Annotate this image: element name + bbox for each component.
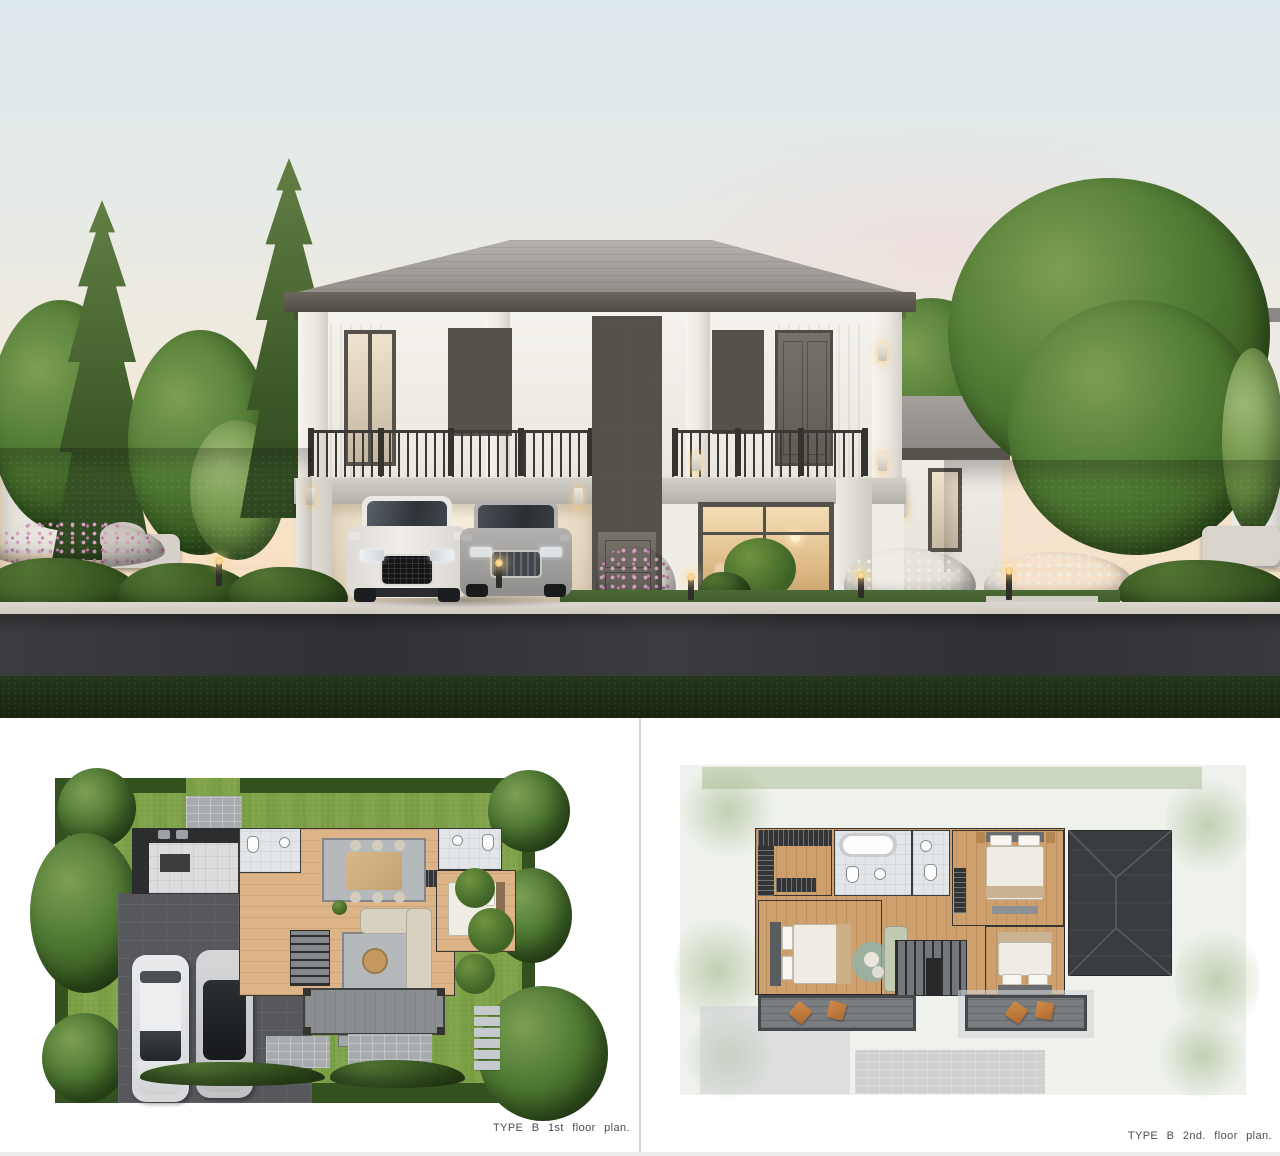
- window-glass: [452, 332, 508, 432]
- upper-window: [448, 328, 512, 436]
- car-windshield-top: [140, 1031, 181, 1061]
- plan-tree: [42, 1013, 127, 1103]
- staircase: [895, 940, 967, 996]
- nightstand: [976, 832, 985, 843]
- bed-throw: [998, 932, 1052, 942]
- wardrobe: [758, 846, 774, 896]
- stepping-stone: [474, 1006, 500, 1015]
- front-intake: [368, 588, 446, 597]
- pillow: [990, 835, 1012, 846]
- bed-bench: [992, 906, 1038, 914]
- bollard-glow: [495, 559, 503, 567]
- foreground-grass: [0, 676, 1280, 718]
- dining-chair: [372, 892, 383, 903]
- pillow: [1018, 835, 1040, 846]
- bollard-glow: [687, 573, 695, 581]
- bollard-light: [496, 562, 502, 588]
- railing-post: [378, 428, 384, 476]
- railing-post: [448, 428, 454, 476]
- floor-plan-1-caption: TYPE B 1st floor plan.: [493, 1122, 630, 1134]
- headlight: [470, 547, 492, 557]
- dining-chair: [350, 840, 361, 851]
- faded-pavers: [855, 1050, 1045, 1094]
- wheel: [466, 584, 488, 597]
- toilet: [924, 864, 937, 881]
- upper-window: [712, 330, 764, 434]
- plant: [332, 900, 347, 915]
- nightstand: [1046, 832, 1055, 843]
- side-mirror: [461, 534, 472, 541]
- balcony-left: [308, 426, 594, 480]
- windshield: [478, 505, 554, 530]
- audi-grille: [380, 554, 434, 586]
- hip-roof: [280, 240, 920, 295]
- basin: [279, 837, 290, 848]
- headlight: [430, 550, 454, 561]
- hedge-border: [240, 778, 522, 793]
- roof-fascia: [284, 292, 916, 312]
- stepping-stone: [474, 1050, 500, 1059]
- basin: [874, 868, 886, 880]
- bollard-glow: [215, 557, 223, 565]
- dining-chair: [350, 892, 361, 903]
- stepping-stone: [474, 1039, 500, 1048]
- kitchen-sink: [176, 830, 188, 839]
- railing-post: [798, 428, 804, 476]
- dining-table: [346, 852, 402, 890]
- railing-post: [735, 428, 741, 476]
- pouf: [872, 966, 884, 978]
- toilet: [482, 834, 494, 851]
- wardrobe: [758, 830, 832, 846]
- coffee-table: [362, 948, 388, 974]
- wall-sconce: [574, 488, 583, 505]
- garden-shrub: [455, 868, 495, 908]
- wall-sconce: [878, 344, 887, 361]
- pillow: [1028, 974, 1048, 985]
- wheel: [354, 588, 376, 602]
- balcony-right: [672, 426, 868, 480]
- bollard-light: [688, 576, 694, 600]
- pillow: [782, 926, 793, 950]
- pillow: [782, 956, 793, 980]
- dining-chair: [372, 840, 383, 851]
- wall-sconce: [878, 454, 887, 471]
- headlight: [540, 547, 562, 557]
- wardrobe: [776, 878, 816, 892]
- railing-post: [672, 428, 678, 476]
- faded-tree: [1155, 1013, 1250, 1098]
- bed-headboard: [770, 922, 781, 986]
- balcony-railing: [672, 430, 868, 477]
- kitchen-island: [160, 854, 190, 872]
- stepping-stone: [474, 1017, 500, 1026]
- white-suv: [346, 496, 468, 602]
- bathtub: [839, 833, 897, 857]
- terrace: [303, 988, 445, 1035]
- car-rear-glass: [140, 971, 181, 983]
- bed-throw: [836, 924, 851, 984]
- window-glass: [716, 334, 760, 430]
- side-mirror: [348, 532, 360, 540]
- dining-chair: [394, 840, 405, 851]
- balcony-cushion: [1035, 1001, 1055, 1021]
- bed: [998, 942, 1052, 976]
- floor-plan-2-caption: TYPE B 2nd. floor plan.: [1128, 1130, 1272, 1142]
- railing-post: [862, 428, 868, 476]
- entry-paving: [186, 796, 242, 830]
- floor-plan-1st: TYPE B 1st floor plan.: [0, 718, 640, 1156]
- terrace-post: [437, 1027, 445, 1035]
- gray-suv: [460, 500, 572, 598]
- staircase: [290, 930, 330, 986]
- dining-chair: [394, 892, 405, 903]
- stepping-stone: [474, 1061, 500, 1070]
- water-closet: [912, 830, 950, 896]
- terrace-post: [303, 988, 311, 996]
- brochure-page: TYPE B 1st floor plan.: [0, 0, 1280, 1156]
- bathtub-basin: [843, 836, 893, 854]
- bollard-light: [1006, 570, 1012, 600]
- basin: [452, 835, 463, 846]
- pouf: [864, 952, 879, 967]
- bed-throw: [986, 886, 1044, 898]
- stepping-stone: [474, 1028, 500, 1037]
- window-transom: [703, 532, 829, 535]
- windshield: [367, 501, 447, 529]
- kitchen-counter: [132, 828, 149, 894]
- wheel: [544, 584, 566, 597]
- bollard-glow: [857, 571, 865, 579]
- terrace-post: [437, 988, 445, 996]
- terrace-post: [303, 1027, 311, 1035]
- stair-void: [926, 958, 941, 996]
- wheel: [438, 588, 460, 602]
- road: [0, 614, 1280, 676]
- entry-window-glass: [598, 322, 656, 528]
- carport-roof-top: [1068, 830, 1172, 976]
- side-mirror: [560, 534, 571, 541]
- headlight: [360, 550, 384, 561]
- garden-shrub: [455, 954, 495, 994]
- garden-shrub: [468, 908, 514, 954]
- floor-plans: TYPE B 1st floor plan.: [0, 718, 1280, 1156]
- toilet: [846, 866, 859, 883]
- floor-plan-2nd: TYPE B 2nd. floor plan.: [640, 718, 1280, 1156]
- railing-post: [518, 428, 524, 476]
- toilet: [247, 836, 259, 853]
- faded-hedge: [702, 767, 1202, 789]
- basin: [920, 840, 932, 852]
- bollard-light: [858, 574, 864, 598]
- pillow: [1002, 974, 1022, 985]
- car-roof-top: [140, 983, 181, 1031]
- wall-sconce: [692, 454, 701, 471]
- kitchen-sink: [158, 830, 170, 839]
- exterior-render: [0, 0, 1280, 718]
- sidewalk-curb: [0, 602, 1280, 614]
- wardrobe: [954, 868, 966, 913]
- bollard-light: [216, 560, 222, 586]
- bollard-glow: [1005, 567, 1013, 575]
